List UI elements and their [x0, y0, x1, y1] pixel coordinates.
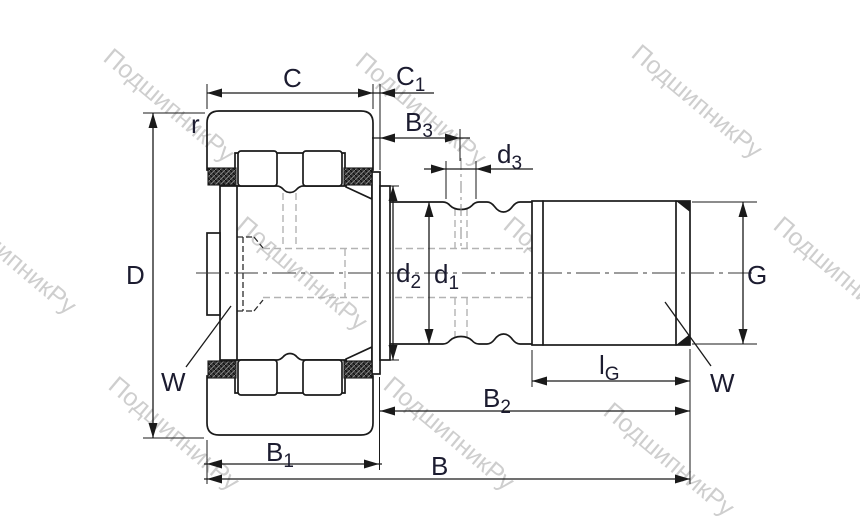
roller	[303, 151, 342, 186]
stud-end-boss	[207, 233, 220, 315]
watermark-text: ПодшипникРу	[598, 397, 740, 522]
label-G: G	[747, 260, 767, 290]
roller	[303, 360, 342, 395]
label-lG: lG	[599, 350, 620, 385]
watermark-text: ПодшипникРу	[768, 211, 860, 336]
roller	[238, 151, 277, 186]
drawing-page: ПодшипникРу ПодшипникРу ПодшипникРу Подш…	[0, 0, 860, 530]
label-B: B	[431, 451, 448, 481]
label-r: r	[191, 109, 200, 139]
seal	[344, 168, 372, 185]
label-W-left: W	[161, 367, 186, 397]
seal	[208, 361, 236, 378]
watermark-text: ПодшипникРу	[0, 195, 82, 320]
label-C: C	[283, 63, 302, 93]
seal	[208, 168, 236, 185]
label-D: D	[126, 260, 145, 290]
roller	[238, 360, 277, 395]
label-B1: B1	[266, 437, 294, 472]
outer-ring-bottom	[207, 376, 373, 435]
cam-follower-technical-drawing: ПодшипникРу ПодшипникРу ПодшипникРу Подш…	[0, 0, 860, 530]
seal	[344, 361, 372, 378]
label-d3: d3	[497, 139, 522, 174]
label-C1: C1	[396, 61, 425, 96]
watermark-text: ПодшипникРу	[626, 39, 768, 164]
label-B2: B2	[483, 383, 511, 418]
watermark-text: ПодшипникРу	[98, 43, 240, 168]
label-W-right: W	[710, 368, 735, 398]
